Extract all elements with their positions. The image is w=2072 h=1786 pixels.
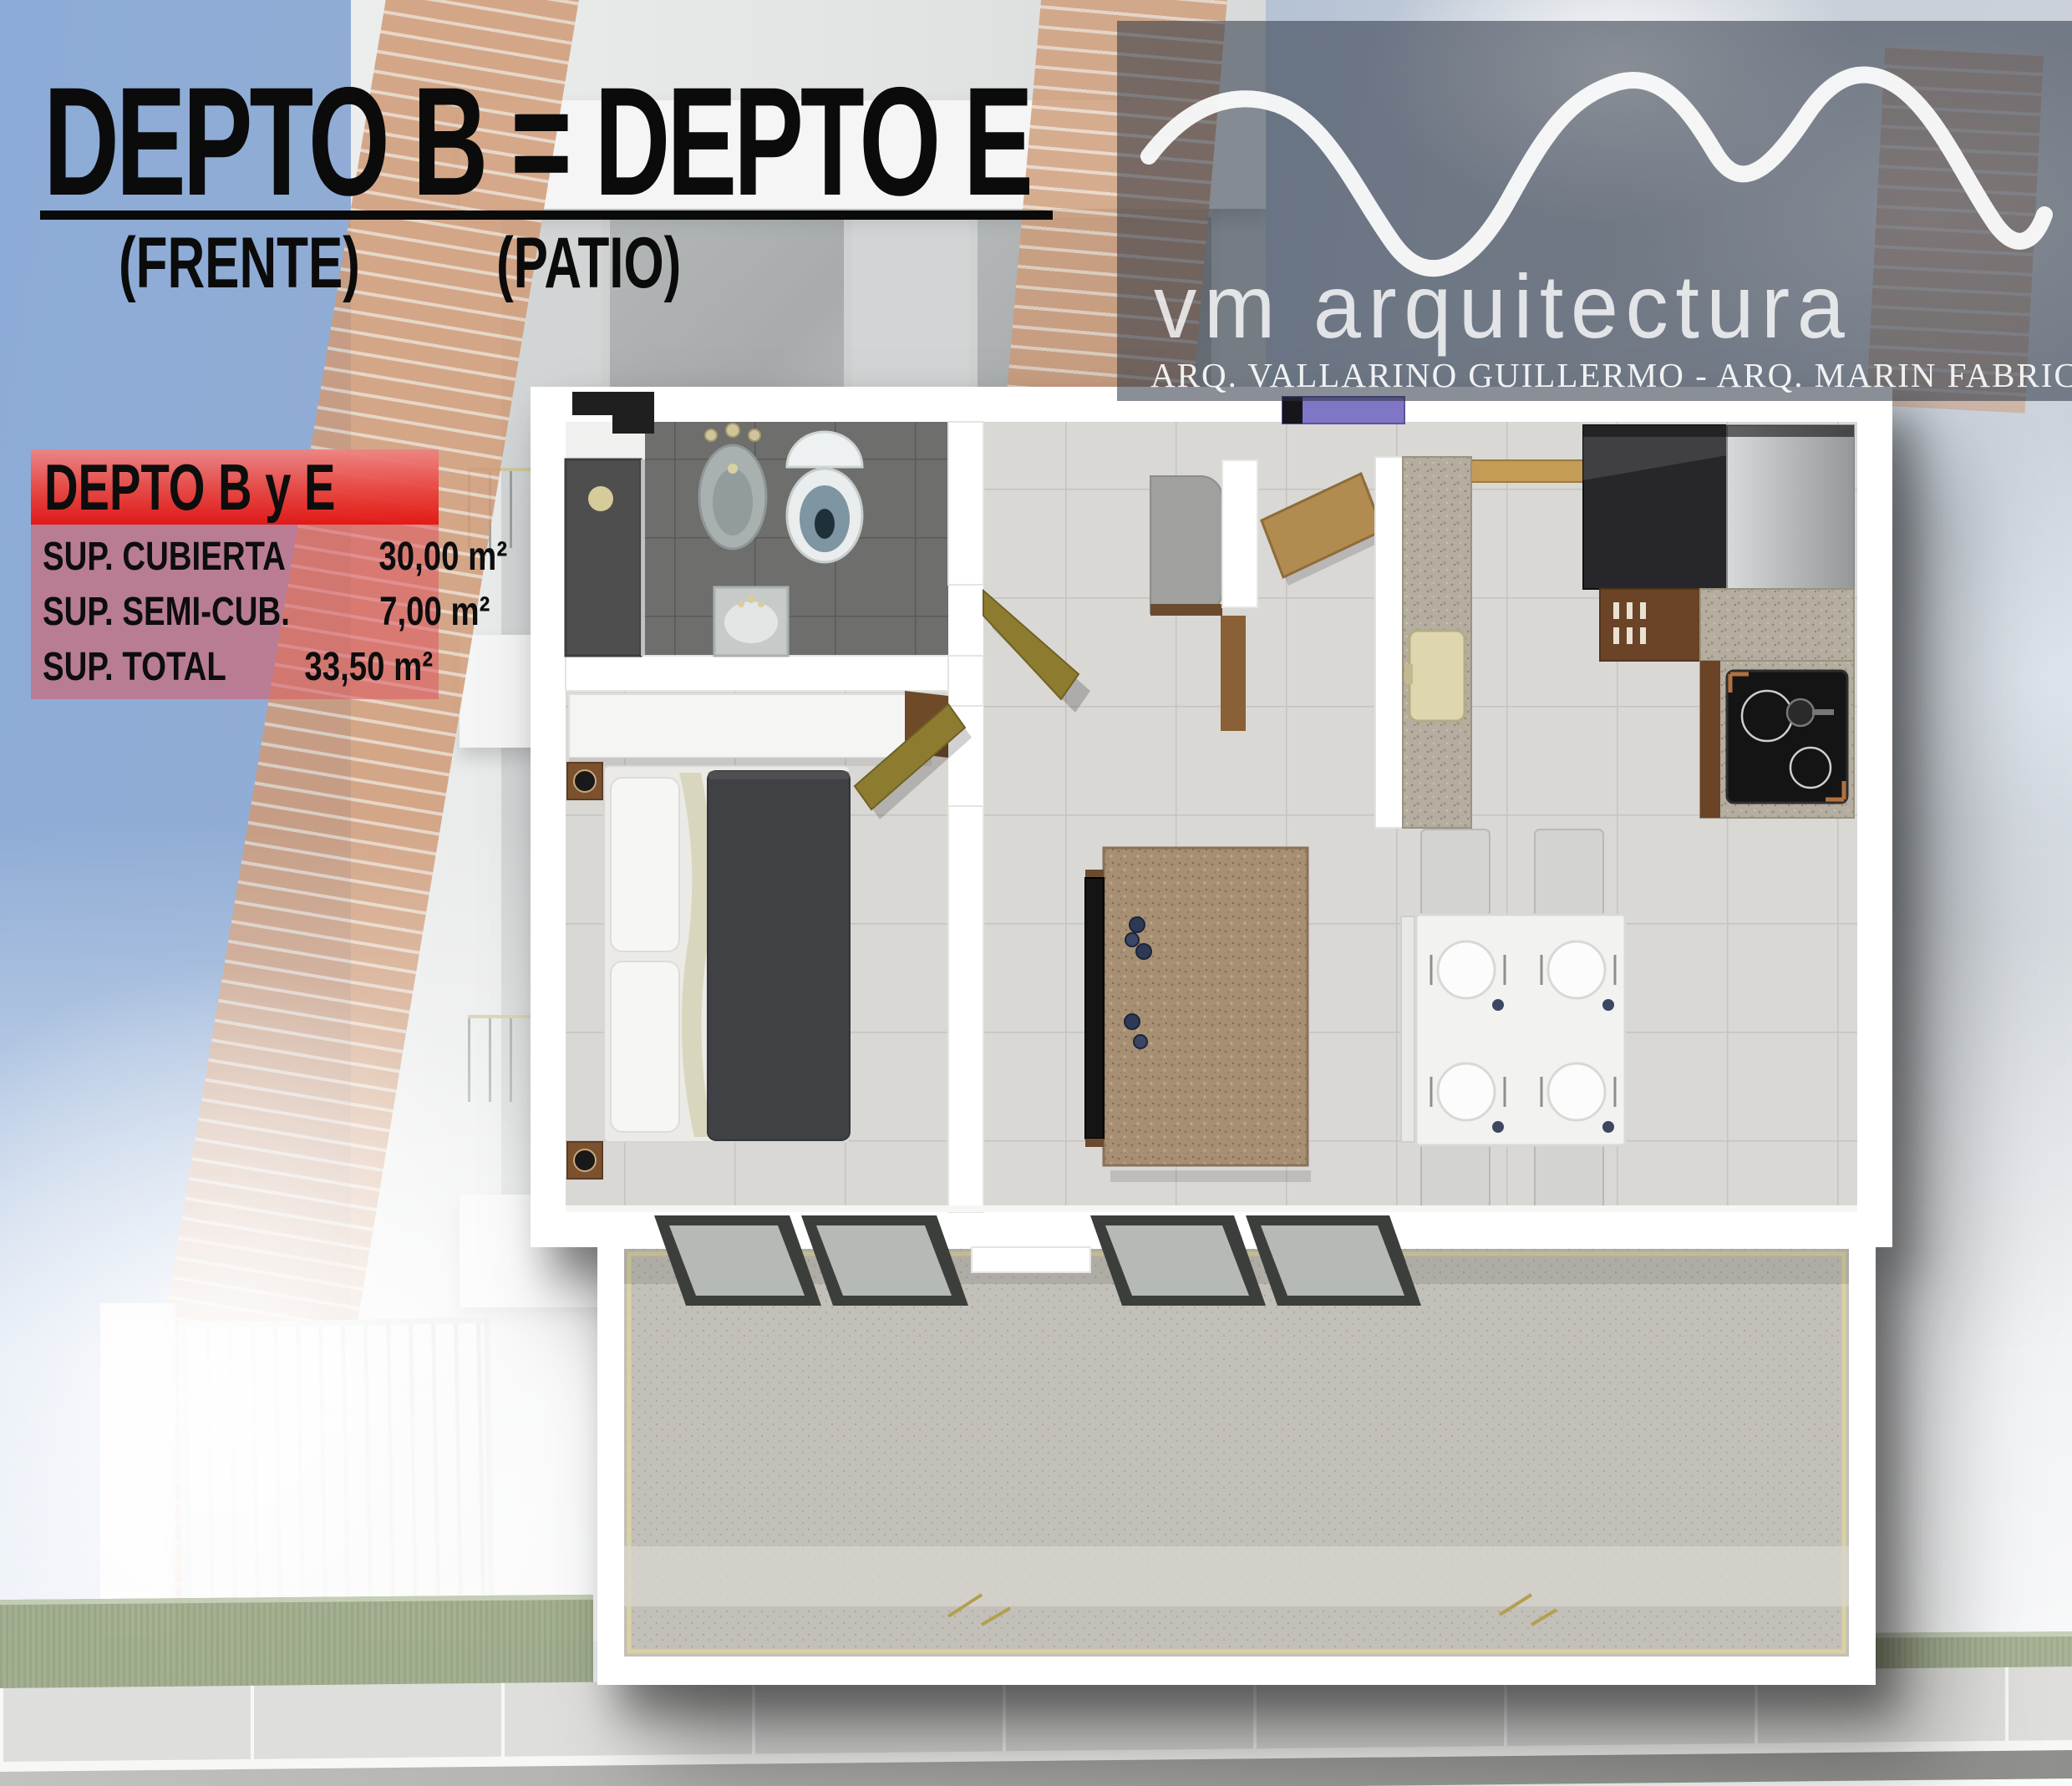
microwave-cabinet bbox=[1600, 589, 1700, 661]
surface-row: SUP. CUBIERTA 30,00 m² bbox=[31, 530, 439, 585]
page-title: DEPTO B = DEPTO E bbox=[43, 65, 1030, 220]
pillow-top bbox=[611, 778, 679, 951]
wardrobe bbox=[569, 694, 932, 758]
brand-name: vm arquitectura bbox=[1154, 261, 1851, 352]
subtitle-frente: (FRENTE) bbox=[119, 227, 360, 299]
pan bbox=[1787, 699, 1814, 726]
surface-label: SUP. SEMI-CUB. bbox=[43, 589, 290, 635]
dining-chair bbox=[1421, 830, 1490, 916]
kitchen-sink bbox=[1409, 631, 1465, 721]
bench bbox=[1401, 916, 1414, 1142]
speaker-top bbox=[567, 763, 602, 799]
dining-chair bbox=[1535, 830, 1603, 916]
bathroom-sink bbox=[714, 587, 788, 656]
counter-block bbox=[1700, 589, 1854, 661]
grass-strip-left bbox=[0, 1595, 593, 1688]
title-underline bbox=[40, 211, 1053, 220]
surface-value: 30,00 m² bbox=[378, 534, 507, 580]
entry-pillar bbox=[1222, 460, 1257, 607]
surface-label: SUP. CUBIERTA bbox=[43, 534, 286, 580]
kitchen-island bbox=[1085, 848, 1311, 1182]
subtitle-patio: (PATIO) bbox=[496, 227, 681, 299]
floorplan bbox=[514, 380, 1917, 1729]
shower-glass bbox=[641, 459, 645, 656]
kitchen-counter bbox=[1375, 457, 1471, 828]
architectural-presentation: vm arquitectura ARQ. VALLARINO GUILLERMO… bbox=[0, 0, 2072, 1786]
surface-label: SUP. TOTAL bbox=[43, 644, 226, 690]
duvet bbox=[708, 771, 850, 1140]
bed bbox=[604, 766, 850, 1142]
info-box-body: SUP. CUBIERTA 30,00 m² SUP. SEMI-CUB. 7,… bbox=[31, 525, 439, 699]
speaker-bottom bbox=[567, 1142, 602, 1179]
balcony-pier bbox=[972, 1247, 1090, 1272]
shower bbox=[566, 459, 645, 656]
surface-value: 7,00 m² bbox=[379, 589, 490, 635]
surface-row: SUP. SEMI-CUB. 7,00 m² bbox=[31, 585, 439, 640]
info-box-header: DEPTO B y E bbox=[31, 449, 439, 525]
pillow-bottom bbox=[611, 961, 679, 1132]
toilet bbox=[787, 432, 862, 562]
surface-value: 33,50 m² bbox=[304, 644, 433, 690]
info-box-title: DEPTO B y E bbox=[44, 449, 336, 525]
architects-names: ARQ. VALLARINO GUILLERMO - ARQ. MARIN FA… bbox=[1150, 358, 2072, 393]
cooktop bbox=[1700, 661, 1854, 818]
surface-row: SUP. TOTAL 33,50 m² bbox=[31, 640, 439, 695]
kitchen-partition-wall bbox=[1375, 457, 1403, 828]
floorplan-render bbox=[514, 380, 1917, 1729]
wood-post bbox=[1221, 616, 1246, 731]
tv-panel bbox=[1085, 878, 1104, 1139]
logo-band: vm arquitectura ARQ. VALLARINO GUILLERMO… bbox=[1117, 21, 2072, 401]
fridge bbox=[1583, 425, 1854, 589]
fridge-cabinet bbox=[1727, 425, 1854, 589]
